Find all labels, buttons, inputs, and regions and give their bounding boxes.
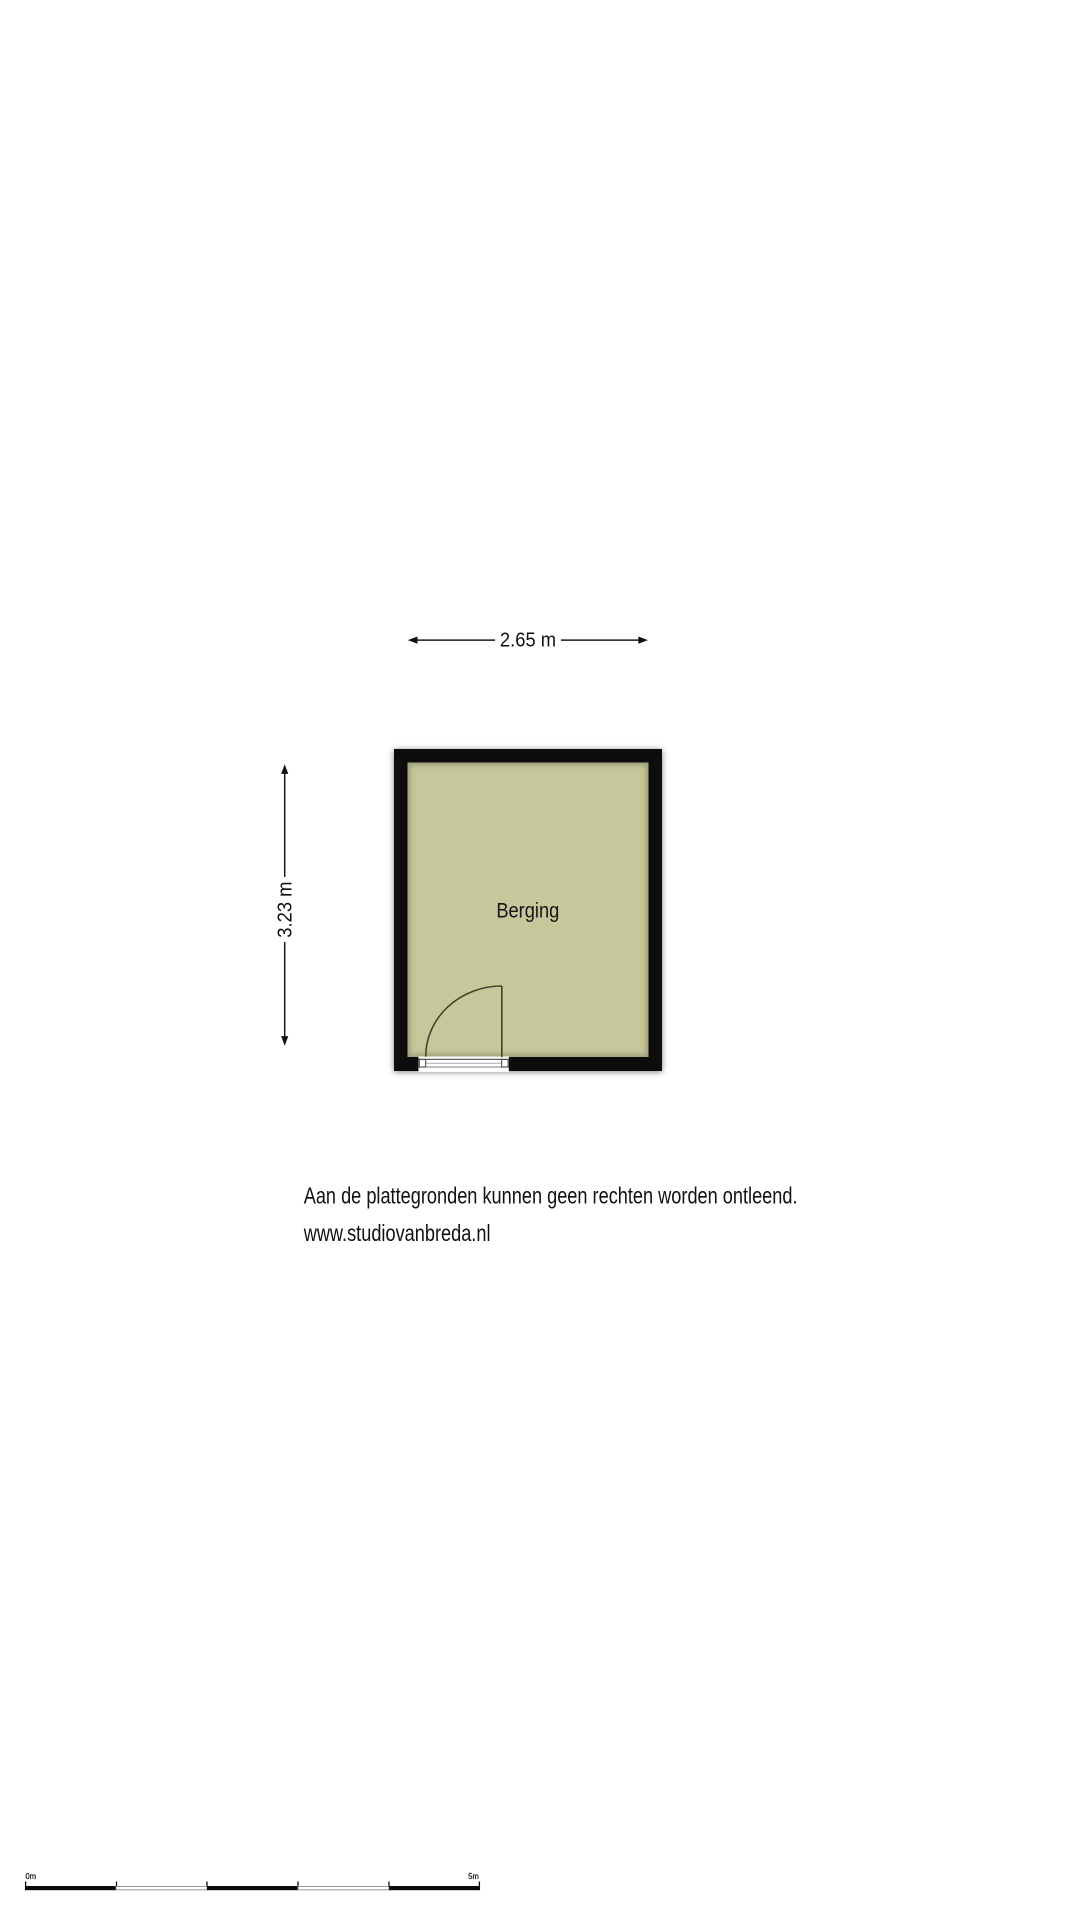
svg-text:www.studiovanbreda.nl: www.studiovanbreda.nl xyxy=(303,1221,491,1247)
svg-text:Aan de plattegronden kunnen ge: Aan de plattegronden kunnen geen rechten… xyxy=(304,1183,798,1209)
svg-text:2.65 m: 2.65 m xyxy=(500,630,556,652)
svg-text:Berging: Berging xyxy=(496,899,559,922)
svg-text:3.23 m: 3.23 m xyxy=(275,881,297,937)
svg-text:0m: 0m xyxy=(26,1872,37,1881)
svg-text:5m: 5m xyxy=(468,1872,479,1881)
